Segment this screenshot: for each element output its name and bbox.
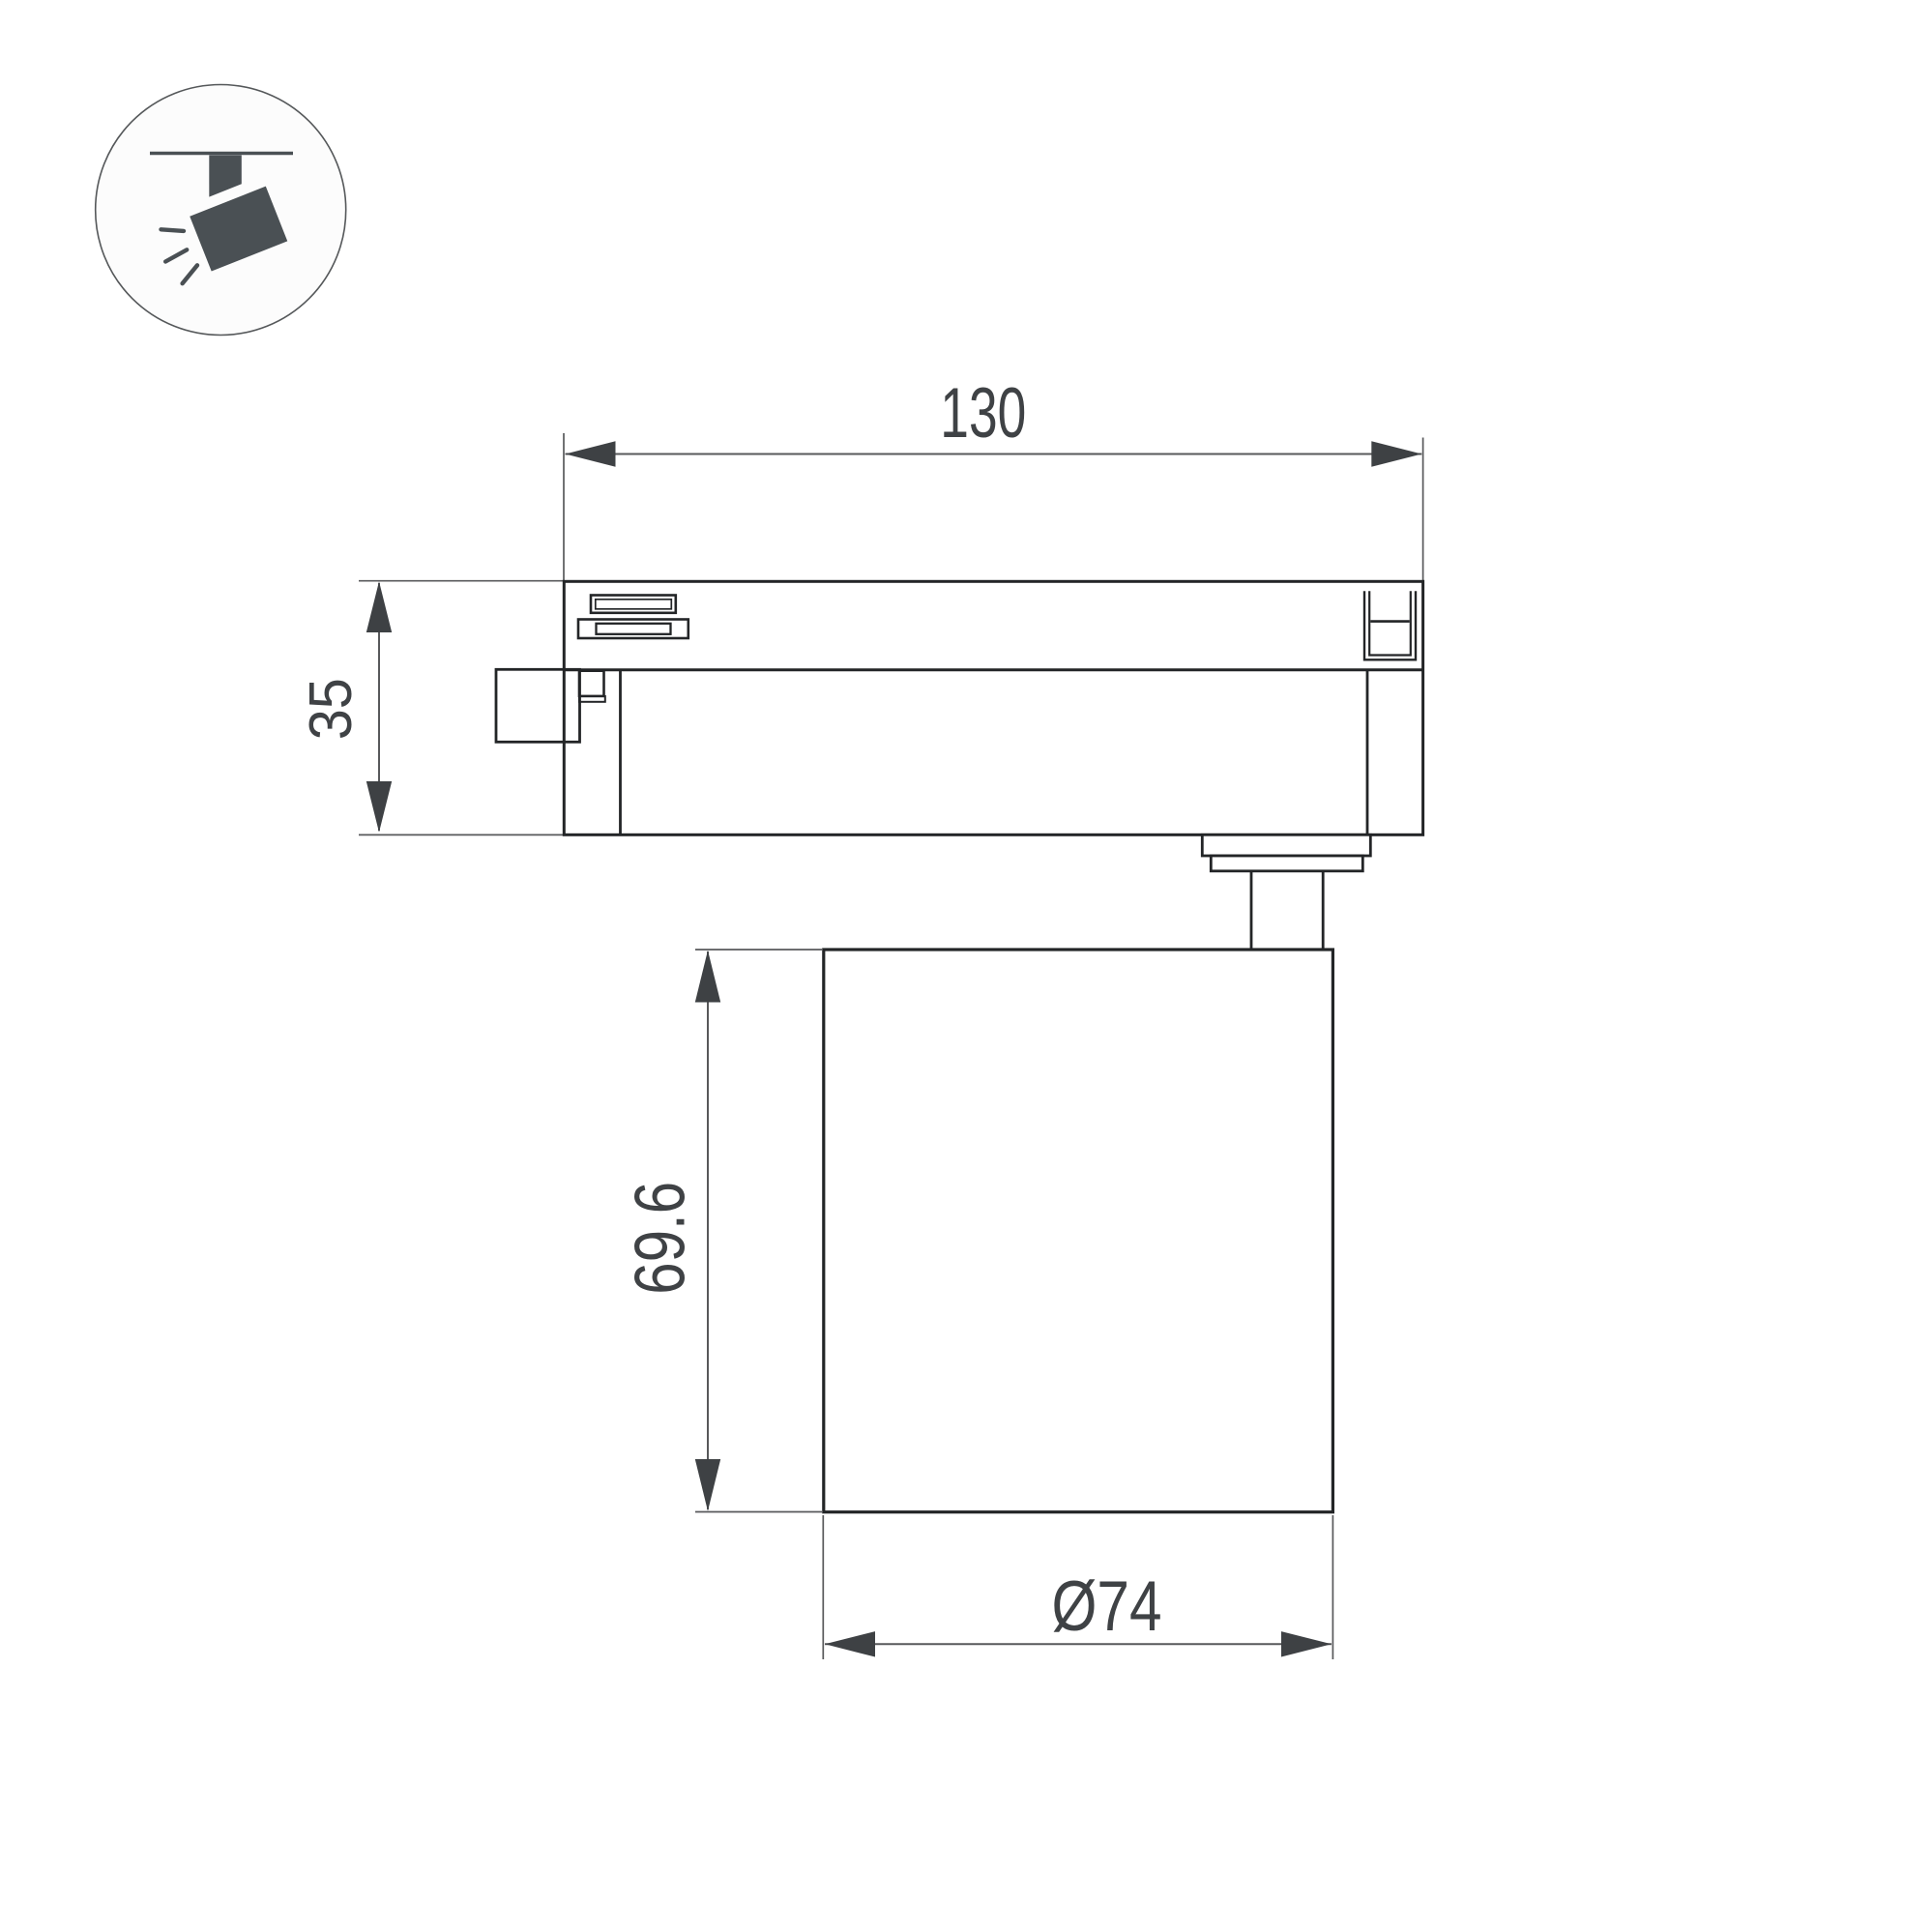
svg-text:35: 35 bbox=[298, 678, 365, 740]
svg-text:130: 130 bbox=[940, 374, 1026, 453]
svg-text:69.6: 69.6 bbox=[622, 1182, 700, 1295]
svg-text:Ø74: Ø74 bbox=[1052, 1567, 1162, 1646]
